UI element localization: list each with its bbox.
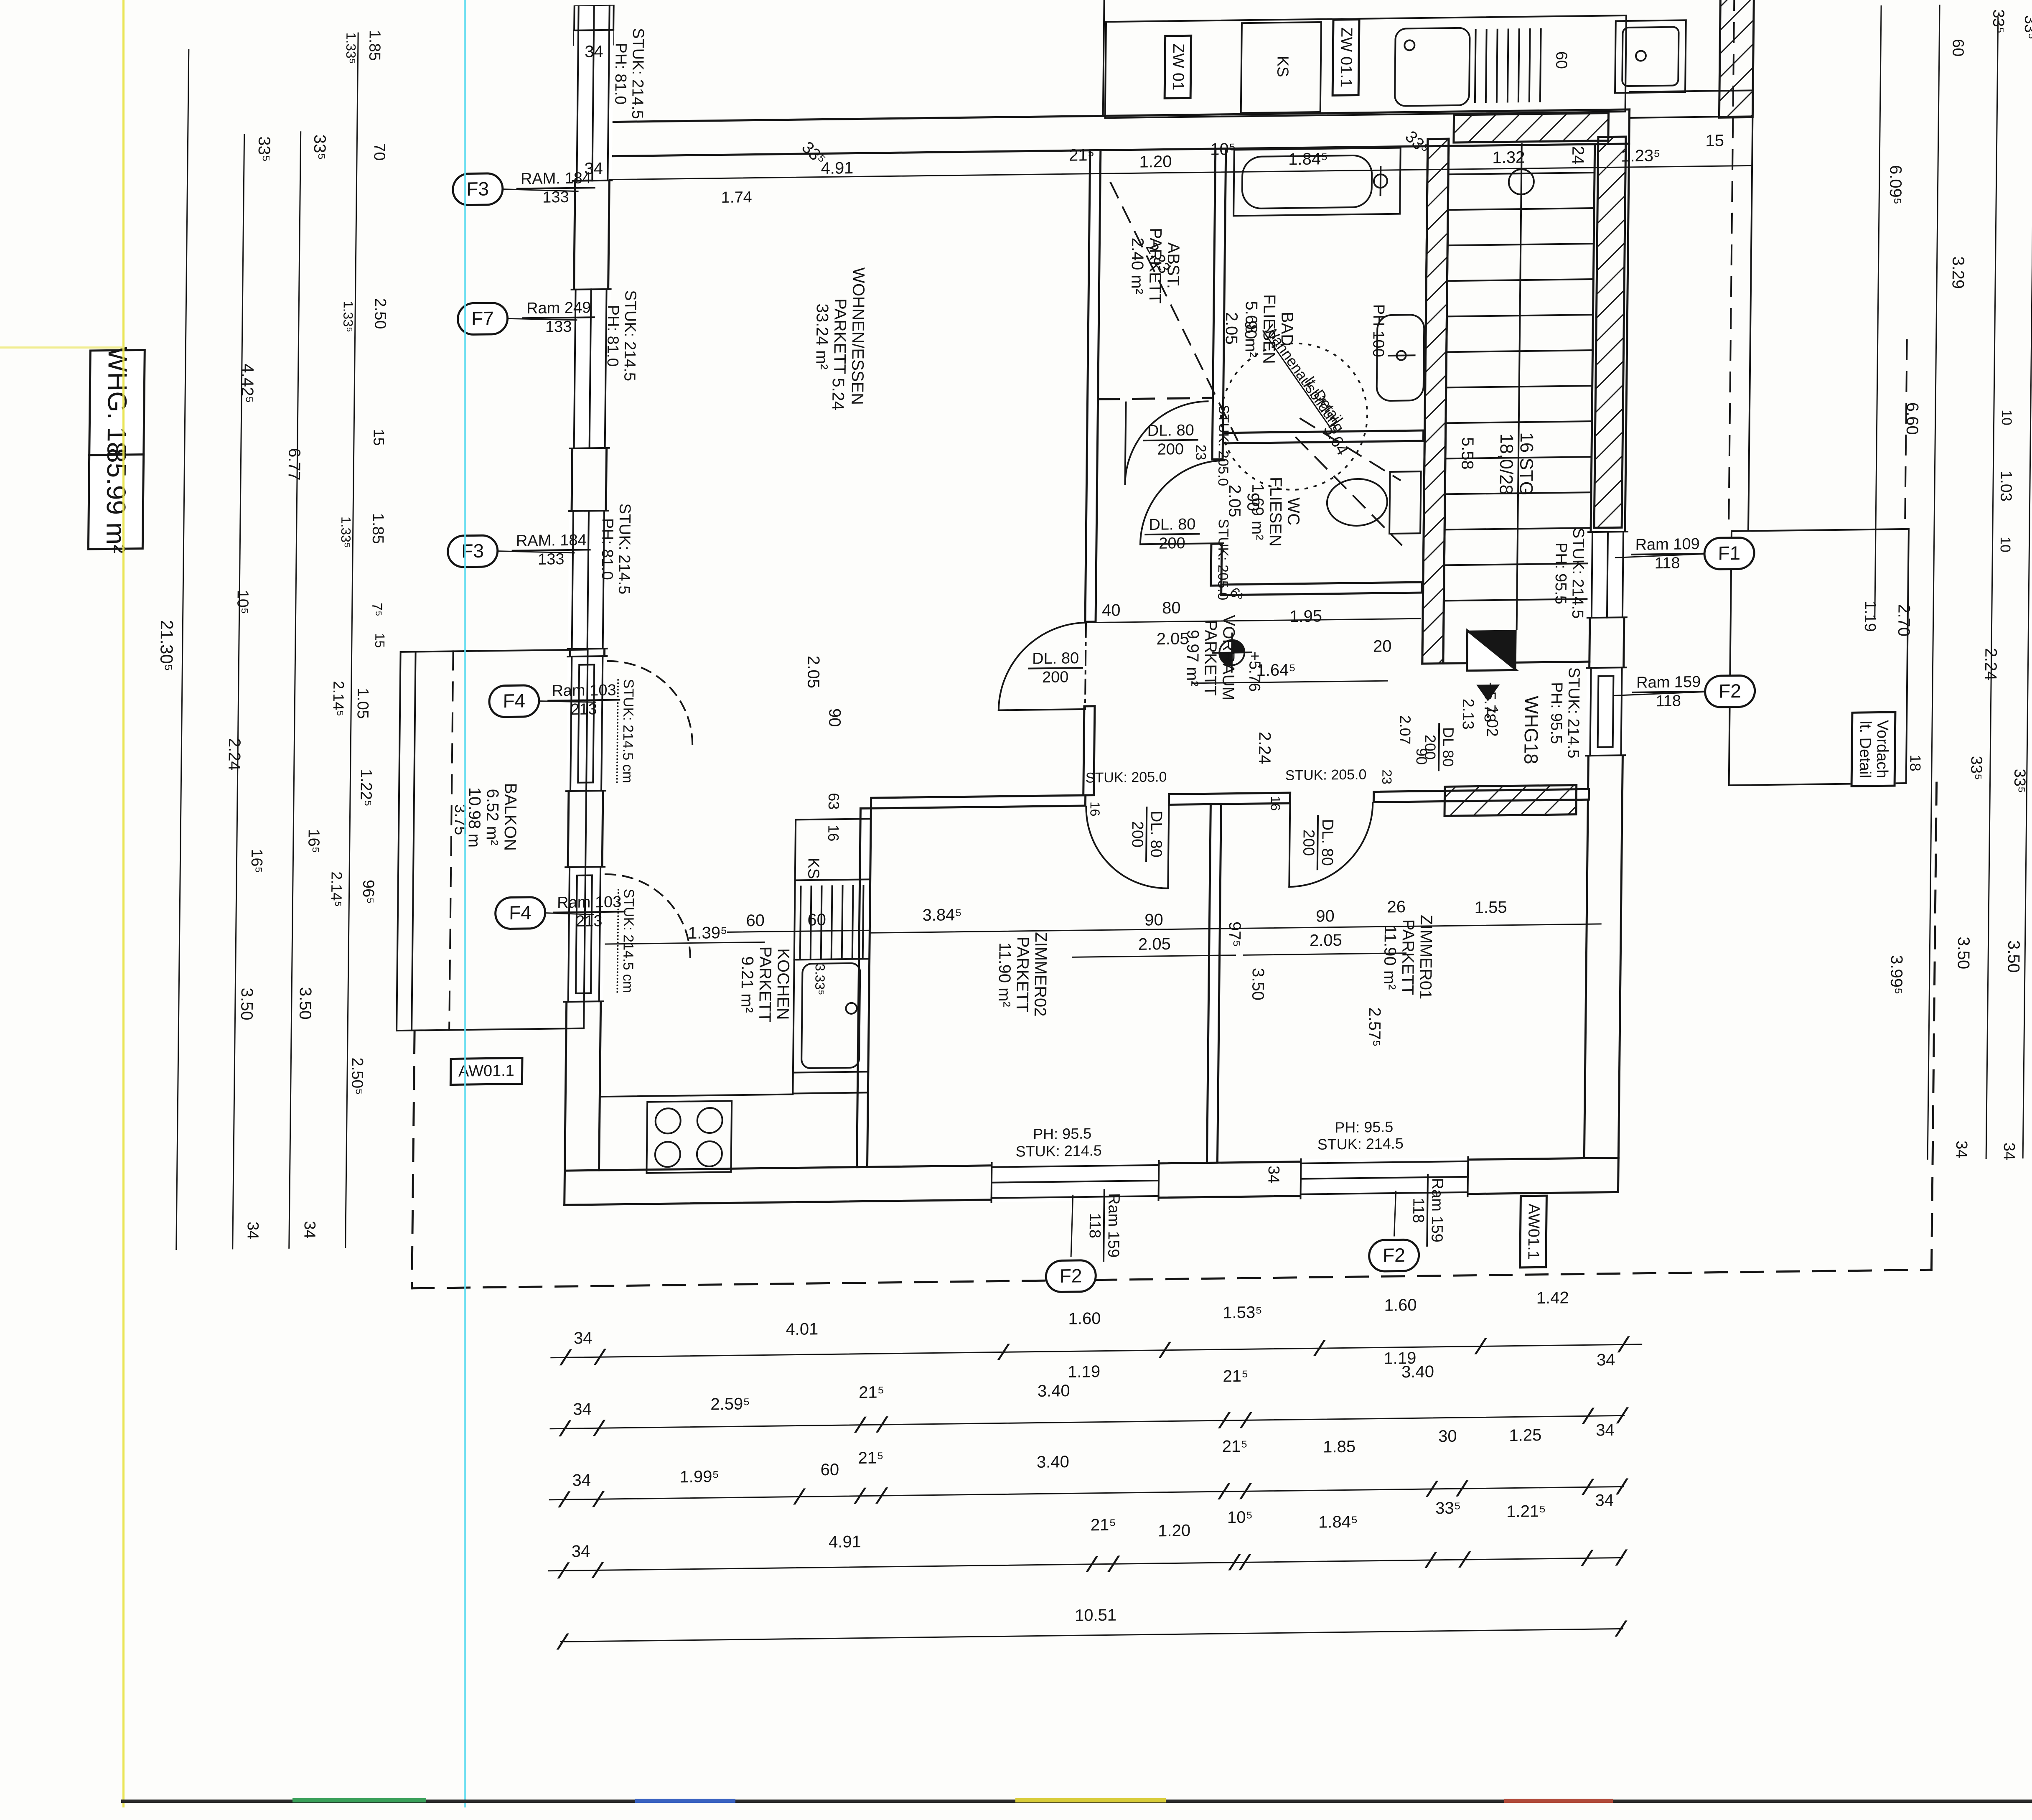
dim-bottom: 60 <box>820 1461 839 1479</box>
dim-tick: ∕ <box>1317 1336 1322 1361</box>
entry-landing <box>1623 0 1915 787</box>
dim-left: 1.85 <box>369 513 387 544</box>
scanned-floor-plan-sheet: { "document": { "type": "floor-plan-scan… <box>0 0 2032 1807</box>
dim: 2.57⁵ <box>1365 1007 1383 1047</box>
dim: 1.39⁵ <box>688 924 727 942</box>
dim-bottom: 10⁵ <box>1227 1509 1253 1527</box>
dim-bottom: 34 <box>572 1471 591 1490</box>
spec-door-wc: STUK: 205.0 <box>1215 519 1231 600</box>
neighbor-sink <box>1395 28 1470 106</box>
dim-tick: ∕ <box>1620 1474 1624 1499</box>
dim-bottom: 1.19 <box>1068 1363 1100 1381</box>
whg18-label: WHG18 <box>1520 696 1541 764</box>
dim: 23 <box>1193 444 1208 460</box>
sheet: WHG. 1885.99 m²F3RAM. 184133F7Ram 249133… <box>0 0 2032 1807</box>
dim: 1.23⁵ <box>1621 147 1661 165</box>
dim-tick: ∕ <box>1619 1545 1623 1571</box>
dim: 5.58 <box>1458 437 1476 470</box>
window-f1 <box>1587 532 1628 618</box>
dim-bottom: 21⁵ <box>858 1449 884 1467</box>
tag-f4-upper-code: Ram 103213 <box>547 682 621 718</box>
dim-right: 10 <box>1997 537 2013 552</box>
dim-left: 15 <box>370 429 387 446</box>
wall-label-zw01: ZW 01 <box>1164 35 1193 99</box>
dim-left: 2.50 <box>371 298 389 329</box>
dim-bottom: 1.99⁵ <box>679 1468 719 1486</box>
dim: 24 <box>1569 146 1587 165</box>
dim-tick: ∕ <box>561 1629 565 1655</box>
dim-tick: ∕ <box>1111 1551 1116 1577</box>
dim-left: 7⁵ <box>369 603 384 616</box>
dim: 1.95 <box>1289 607 1322 626</box>
dim: 60 <box>746 912 765 930</box>
dim-left: 1.85 <box>366 30 383 61</box>
dim-tick: ∕ <box>597 1415 601 1441</box>
scan-edge-artifact-blue <box>635 1799 735 1803</box>
dim: 3.33⁵ <box>813 964 827 995</box>
dim-tick: ∕ <box>880 1412 884 1438</box>
right-chain-1 <box>1875 6 1881 616</box>
dim: 10⁵ <box>1210 140 1236 159</box>
dim-left: 34 <box>244 1222 261 1240</box>
spec-door-z01: STUK: 205.0 <box>1285 767 1367 783</box>
dim-bottom: 2.59⁵ <box>710 1395 750 1413</box>
dim-bottom: 3.40 <box>1037 1453 1069 1471</box>
dim-bottom: 34 <box>571 1543 590 1561</box>
dim-right: 1.03 <box>1997 471 2014 501</box>
spec-f2br-stuk: STUK: 214.5 <box>1317 1135 1404 1153</box>
dim: 2.05 <box>1138 935 1171 954</box>
scanner-streak-cyan <box>464 0 466 1807</box>
left-chain-3 <box>289 132 301 1248</box>
dim-tick: ∕ <box>596 1558 600 1583</box>
tag-f4-lower-code: Ram 103213 <box>552 893 626 930</box>
dim-bottom: 1.53⁵ <box>1223 1303 1262 1322</box>
dim: 2.05 <box>1310 932 1342 950</box>
dim-tick: ∕ <box>880 1483 884 1509</box>
room-balkon: BALKON 6.52 m² 10.98 m <box>465 783 519 851</box>
tag-f1: F1 <box>1703 536 1755 570</box>
bottom-dim-row-1 <box>551 1344 1642 1358</box>
dim-right: 2.24 <box>1981 648 2000 680</box>
dim-left: 21.30⁵ <box>157 620 177 671</box>
dim-right: 60 <box>1949 39 1966 57</box>
dim-tick: ∕ <box>1430 1476 1434 1502</box>
dim-left: 10⁵ <box>234 590 251 614</box>
dim-tick: ∕ <box>1622 1332 1626 1357</box>
dim-right: 1.19 <box>1861 601 1879 632</box>
spec-f2br-ph: PH: 95.5 <box>1335 1119 1393 1136</box>
room-wc: WC FLIESEN 1.69 m² <box>1248 476 1302 547</box>
spec-f7: STUK: 214.5 PH: 81.0 <box>603 290 638 382</box>
dim-right: 33⁵ <box>1967 756 1985 781</box>
wc-cistern <box>1389 471 1421 534</box>
dim-right: 3.50 <box>2004 940 2022 973</box>
dim: 34 <box>584 160 603 178</box>
dim-left: 34 <box>300 1221 318 1239</box>
tag-f7-code: Ram 249133 <box>522 299 595 336</box>
dim-right: 6.60 <box>1903 402 1921 435</box>
label-ks-kitchen: KS <box>804 858 822 879</box>
dim-right: 3.29 <box>1948 256 1967 289</box>
dim-bottom: 1.84⁵ <box>1318 1513 1358 1532</box>
dim-tick: ∕ <box>1619 1616 1623 1642</box>
dim-tick: ∕ <box>858 1412 862 1438</box>
dim-tick: ∕ <box>596 1487 600 1512</box>
dim: 90 <box>1316 907 1335 926</box>
scanner-streak-yellow-horizontal <box>0 346 124 349</box>
bottom-dim-row-4 <box>549 1558 1623 1571</box>
dim-bottom: 21⁵ <box>1091 1516 1116 1535</box>
dim-left: 2.14⁵ <box>328 871 345 907</box>
wall-label-zw011: ZW 01.1 <box>1332 18 1361 96</box>
dim: 2.05 <box>804 656 822 688</box>
dim-right: 6.09⁵ <box>1886 165 1905 205</box>
spec-f2bl-ph: PH: 95.5 <box>1033 1125 1091 1143</box>
dim: 3.84⁵ <box>922 906 962 924</box>
door-wohnen: DL. 80200 <box>1027 650 1083 687</box>
label-ph100: PH 100 <box>1369 304 1387 357</box>
dim: 90 <box>1413 748 1429 765</box>
dim-bottom: 1.20 <box>1158 1522 1190 1540</box>
dim: 2.07 <box>1396 715 1413 745</box>
dim-bottom: 1.60 <box>1384 1296 1417 1315</box>
dim-tick: ∕ <box>563 1416 567 1441</box>
spec-f2-right: STUK: 214.5 PH: 95.5 <box>1547 667 1582 759</box>
left-chain-1 <box>176 50 189 1250</box>
tag-f2-bottom-left: F2 <box>1045 1259 1097 1293</box>
dim-left: 33⁵ <box>254 136 273 162</box>
dim: 1.32 <box>1492 148 1525 167</box>
scan-edge-artifact-red <box>1504 1799 1613 1803</box>
dim-left: 1.22⁵ <box>357 769 374 807</box>
dim: 16 <box>1088 802 1102 817</box>
tag-f2-bottom-right-code: Ram 159118 <box>1409 1173 1446 1247</box>
dim-tick: ∕ <box>564 1345 568 1370</box>
dim-left: 2.24 <box>225 738 243 771</box>
dim: 40 <box>1102 601 1121 620</box>
bottom-dim-row-5 <box>561 1629 1623 1642</box>
right-chain-3 <box>1986 17 1998 1158</box>
tag-f3-mid: F3 <box>447 534 499 568</box>
dim-tick: ∕ <box>598 1344 602 1370</box>
tag-f2-right-code: Ram 159118 <box>1632 674 1705 710</box>
dim-bottom: 1.42 <box>1536 1289 1569 1307</box>
dim-bottom: 33⁵ <box>1435 1499 1461 1518</box>
dim: 2.05 <box>1222 312 1240 344</box>
dim-tick: ∕ <box>858 1483 862 1509</box>
dim-bottom: 34 <box>1596 1421 1615 1440</box>
dim-tick: ∕ <box>1243 1550 1247 1575</box>
wall-label-aw011-left: AW01.1 <box>450 1057 523 1086</box>
dim: 2.05 <box>1156 630 1189 648</box>
tag-f4-upper: F4 <box>488 684 540 718</box>
dim-right: 33⁵ <box>2011 769 2028 793</box>
dim: 16 <box>1268 796 1283 811</box>
dim-bottom: 10.51 <box>1075 1606 1117 1625</box>
dim-bottom: 1.25 <box>1509 1426 1541 1445</box>
left-chain-2 <box>233 135 244 1249</box>
dim-left: 16⁵ <box>248 849 265 873</box>
dim-right: 10 <box>1999 410 2014 425</box>
dim-bottom: 34 <box>1597 1351 1615 1369</box>
spec-f3-mid: STUK: 214.5 PH: 81.0 <box>598 503 633 595</box>
dim: 34 <box>1264 1166 1282 1184</box>
tag-f3-mid-code: RAM. 184133 <box>511 532 591 568</box>
dim-bottom: 34 <box>573 1400 592 1419</box>
room-vorraum: VORRAUM PARKETT 9.97 m² <box>1183 615 1238 701</box>
dim-tick: ∕ <box>1585 1545 1589 1571</box>
dim: 90 <box>1144 911 1163 929</box>
dim-right: 18 <box>1907 754 1923 771</box>
dim-bottom: 4.91 <box>829 1533 861 1551</box>
dim-left: 3.50 <box>296 987 314 1020</box>
tag-f2-bottom-left-code: Ram 159118 <box>1086 1189 1122 1262</box>
note-vordach: Vordach lt. Detail <box>1850 711 1896 787</box>
room-kochen: KOCHEN PARKETT 9.21 m² <box>737 946 792 1023</box>
wc-toilet-bowl <box>1327 479 1387 526</box>
dim: 2.24 <box>1255 732 1274 764</box>
dim-tick: ∕ <box>1163 1337 1167 1363</box>
dim: 4.91 <box>821 159 853 178</box>
dim-tick: ∕ <box>797 1484 801 1509</box>
door-abst: DL. 80200 <box>1143 422 1198 459</box>
dim-tick: ∕ <box>1222 1408 1226 1433</box>
label-ks-neighbor: KS <box>1274 56 1291 77</box>
dim-right: 3.99⁵ <box>1887 955 1905 995</box>
dim: 16 <box>825 825 841 842</box>
dim-bottom: 3.40 <box>1401 1363 1434 1381</box>
dim-left: 1.33⁵ <box>343 32 358 64</box>
dim-tick: ∕ <box>1586 1474 1590 1500</box>
dim: 90 <box>1244 492 1262 511</box>
dim: 2.05 <box>1225 484 1244 517</box>
dim: 90 <box>825 708 844 727</box>
dim: 34 <box>585 43 603 61</box>
dim: 1.84⁵ <box>1288 150 1328 168</box>
dim: 90 <box>1241 321 1259 339</box>
dim-left: 6.77 <box>285 448 303 481</box>
dim: 1.55 <box>1475 899 1507 917</box>
dim: 80 <box>1162 599 1181 618</box>
stair-label: 16 STG 18,0/28 <box>1496 432 1536 496</box>
right-chain-4 <box>2023 25 2032 1158</box>
scan-edge-artifact-yellow <box>1015 1798 1166 1802</box>
spec-balcony-door-upper: STUK: 214.5 cm <box>616 679 636 783</box>
dim-tick: ∕ <box>1586 1403 1590 1429</box>
tag-f1-code: Ram 109118 <box>1631 536 1704 573</box>
spec-door-z02: STUK: 205.0 <box>1086 769 1167 786</box>
window-f2-bottom-left <box>992 1161 1159 1202</box>
spec-f1: STUK: 214.5 PH: 95.5 <box>1551 527 1587 619</box>
dim-tick: ∕ <box>1244 1408 1248 1433</box>
dim-bottom: 30 <box>1438 1428 1457 1446</box>
dim: 1.02 <box>1483 706 1500 737</box>
dim-bottom: 1.85 <box>1323 1438 1356 1456</box>
spec-door-abst: STUK: 205.0 <box>1215 405 1231 486</box>
door-z02: DL. 80200 <box>1128 807 1165 862</box>
plan-skew-wrapper: WHG. 1885.99 m²F3RAM. 184133F7Ram 249133… <box>0 0 2032 1820</box>
door-z01: DL. 80200 <box>1300 815 1336 871</box>
tag-f2-right: F2 <box>1704 674 1756 708</box>
dim-left: 15 <box>372 633 387 648</box>
neighbor-unit-strip <box>573 0 1686 125</box>
title-line1: WHG. 18 <box>102 346 132 457</box>
dim-tick: ∕ <box>1244 1479 1248 1504</box>
dim-bottom: 34 <box>1595 1492 1614 1510</box>
spec-balcony-door-lower: STUK: 214.5 cm <box>617 888 636 993</box>
dim: 21⁵ <box>1069 146 1095 165</box>
room-zimmer01: ZIMMER01 PARKETT 11.90 m² <box>1380 915 1435 1000</box>
dim-bottom: 1.21⁵ <box>1506 1502 1546 1521</box>
dim-tick: ∕ <box>1462 1547 1467 1573</box>
dim-bottom: 21⁵ <box>1222 1438 1248 1456</box>
dim: 60 <box>807 911 826 929</box>
bottom-dim-row-2 <box>550 1415 1624 1428</box>
dim-tick: ∕ <box>1222 1479 1226 1504</box>
door-wc: DL. 80200 <box>1144 516 1200 553</box>
dim-tick: ∕ <box>1479 1334 1483 1359</box>
dim: 2.13 <box>1459 699 1477 730</box>
dim-tick: ∕ <box>1232 1550 1236 1575</box>
dim-left: 33⁵ <box>310 134 328 160</box>
dim-bottom: 1.60 <box>1068 1310 1101 1328</box>
dim-bottom: 21⁵ <box>859 1383 885 1402</box>
dim: 23 <box>1380 769 1394 784</box>
dim-left: 4.42⁵ <box>238 364 256 403</box>
scan-edge-artifact-green <box>292 1798 426 1802</box>
dim: 26 <box>1387 898 1406 916</box>
dim: 20 <box>1373 637 1392 656</box>
dim-left: 3.50 <box>237 988 256 1020</box>
dim-right: 2.70 <box>1895 604 1913 636</box>
dim: 1.74 <box>721 189 752 206</box>
dim-bottom: 3.40 <box>1038 1382 1070 1400</box>
dim-tick: ∕ <box>1460 1476 1464 1502</box>
title-line2: 85.99 m² <box>101 448 131 554</box>
right-chain-2 <box>1928 5 1940 1159</box>
dim-tick: ∕ <box>1429 1548 1433 1573</box>
dim: 1.64⁵ <box>1256 661 1296 680</box>
dim: 60 <box>1552 51 1569 69</box>
dim-left: 96⁵ <box>359 880 377 904</box>
dim-left: 2.14⁵ <box>330 681 347 716</box>
kitchen-sink <box>801 963 860 1069</box>
plan-linework <box>0 0 2032 1820</box>
wall-label-aw011-right: AW01.1 <box>1519 1195 1548 1269</box>
dim-bottom: 4.01 <box>786 1320 818 1339</box>
dim-right: 3.50 <box>1954 937 1972 969</box>
dim-right: 33⁵ <box>1989 9 2007 34</box>
dim-left: 16⁵ <box>305 829 322 853</box>
spec-f3-top: STUK: 214.5 PH: 81.0 <box>611 28 646 120</box>
dim-left: 1.33⁵ <box>338 517 353 548</box>
dim-tick: ∕ <box>1090 1552 1094 1577</box>
dim-right: 33⁵ <box>2021 15 2032 40</box>
dim-left: 70 <box>370 143 387 161</box>
dim: 5.24 <box>829 378 847 410</box>
room-zimmer02: ZIMMER02 PARKETT 11.90 m² <box>994 932 1050 1017</box>
entry-threshold <box>1445 785 1577 816</box>
tag-f3-top: F3 <box>452 172 504 206</box>
dim: 3.50 <box>1249 968 1267 1000</box>
dim-right: 34 <box>2000 1143 2017 1161</box>
dim-left: 1.05 <box>354 688 371 719</box>
dim-left: 1.33⁵ <box>341 300 355 332</box>
dim-tick: ∕ <box>562 1487 566 1512</box>
dim-bottom: 34 <box>574 1329 593 1348</box>
dim: 97⁵ <box>1225 921 1244 947</box>
dim-left: 2.50⁵ <box>348 1057 366 1095</box>
site-boundary-dashed <box>412 783 1937 1288</box>
dim: 3.75 <box>451 804 468 835</box>
scanner-streak-yellow <box>122 0 125 1807</box>
dim-tick: ∕ <box>1620 1403 1625 1428</box>
dim: 63 <box>825 793 842 810</box>
dim-tick: ∕ <box>1002 1339 1006 1365</box>
dim-bottom: 21⁵ <box>1223 1367 1249 1386</box>
dim-right: 34 <box>1953 1140 1970 1158</box>
spec-f2bl-stuk: STUK: 214.5 <box>1016 1143 1102 1160</box>
dim-tick: ∕ <box>562 1558 566 1583</box>
dim: 15 <box>1705 132 1724 150</box>
entry-door-f2 <box>1586 667 1626 756</box>
tag-f4-lower: F4 <box>494 896 547 930</box>
dim: 1.20 <box>1139 153 1172 171</box>
tag-f3-top-code: RAM. 184133 <box>516 170 595 206</box>
